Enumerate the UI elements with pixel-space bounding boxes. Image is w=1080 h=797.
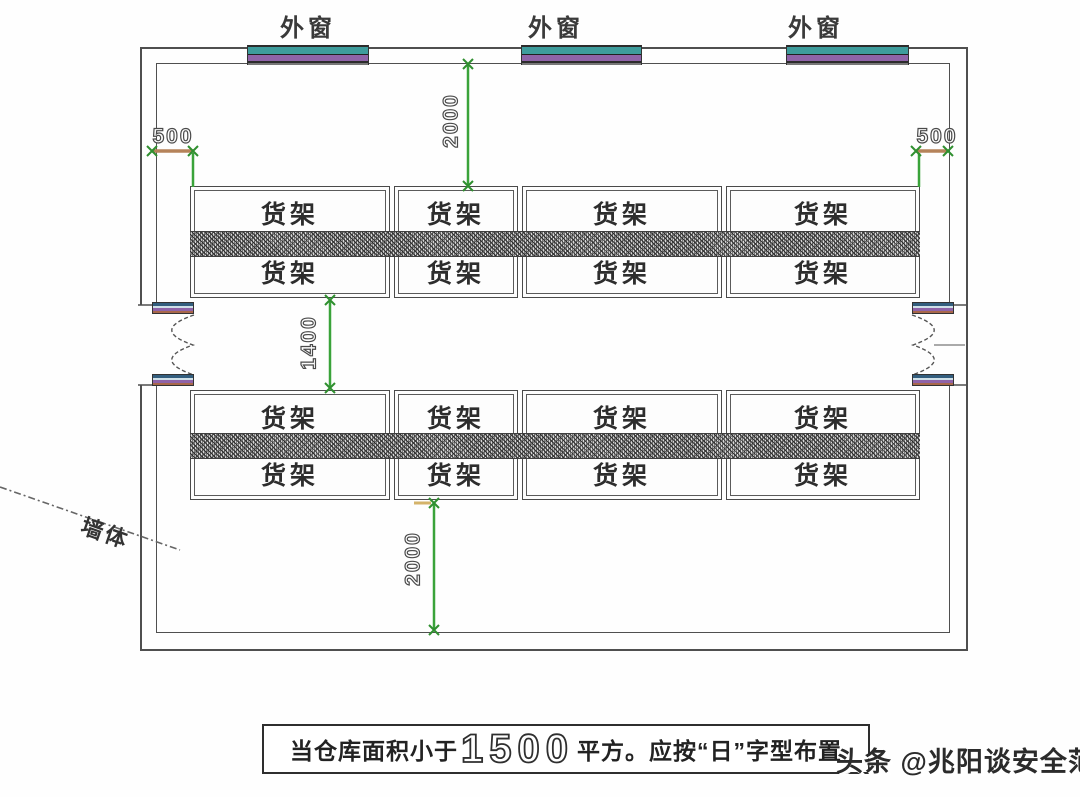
dimension-label-left-500: 500	[146, 126, 200, 147]
shelf-label: 货架	[523, 456, 721, 492]
dimension-label-aisle-1400: 1400	[299, 298, 320, 388]
caption-area-value: 1500	[461, 729, 574, 769]
shelf-label: 货架	[191, 456, 389, 492]
window-icon	[521, 45, 642, 65]
shelf-label: 货架	[395, 399, 517, 435]
wall-label: 墙体	[67, 505, 145, 559]
back-to-back-rack-hatch	[190, 231, 920, 257]
shelf-label: 货架	[727, 456, 919, 492]
shelf-label: 货架	[395, 456, 517, 492]
shelf-label: 货架	[727, 254, 919, 290]
shelf-label: 货架	[191, 399, 389, 435]
shelf-label: 货架	[727, 399, 919, 435]
window-label: 外窗	[273, 8, 343, 43]
shelf-label: 货架	[395, 254, 517, 290]
door-jamb	[152, 374, 194, 386]
door-jamb	[152, 302, 194, 314]
inner-wall	[156, 63, 950, 633]
shelf-label: 货架	[523, 254, 721, 290]
window-icon	[247, 45, 369, 65]
caption-box: 当仓库面积小于 1500 平方。应按“日”字型布置	[262, 724, 870, 774]
watermark-text: 头条 @兆阳谈安全范	[836, 740, 1080, 779]
dimension-label-right-500: 500	[910, 126, 964, 147]
window-label: 外窗	[781, 8, 851, 43]
door-jamb	[912, 374, 954, 386]
door-jamb	[912, 302, 954, 314]
shelf-label: 货架	[191, 195, 389, 231]
floor-plan: 外窗 外窗 外窗 货架 货架 货架 货架 货架 货架 货架 货架 货架	[0, 0, 1080, 797]
shelf-label: 货架	[523, 195, 721, 231]
dimension-label-top-2000: 2000	[441, 76, 462, 166]
shelf-label: 货架	[395, 195, 517, 231]
shelf-label: 货架	[523, 399, 721, 435]
dimension-label-bottom-2000: 2000	[403, 514, 424, 604]
shelf-label: 货架	[727, 195, 919, 231]
back-to-back-rack-hatch	[190, 433, 920, 459]
window-label: 外窗	[521, 8, 591, 43]
window-icon	[786, 45, 909, 65]
shelf-label: 货架	[191, 254, 389, 290]
caption-suffix: 平方。应按“日”字型布置	[577, 732, 842, 766]
caption-prefix: 当仓库面积小于	[290, 732, 458, 766]
